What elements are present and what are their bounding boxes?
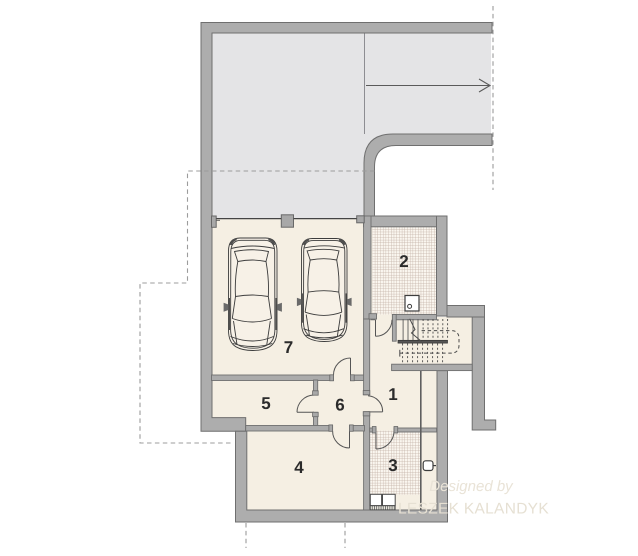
svg-text:3: 3 bbox=[388, 456, 397, 475]
svg-text:Designed by: Designed by bbox=[429, 478, 514, 495]
svg-text:4: 4 bbox=[294, 458, 304, 477]
svg-text:5: 5 bbox=[261, 394, 270, 413]
svg-text:LESZEK KALANDYK: LESZEK KALANDYK bbox=[398, 501, 549, 518]
svg-text:1: 1 bbox=[388, 385, 397, 404]
svg-text:6: 6 bbox=[335, 396, 344, 415]
svg-text:7: 7 bbox=[284, 338, 293, 357]
svg-text:2: 2 bbox=[399, 252, 408, 271]
